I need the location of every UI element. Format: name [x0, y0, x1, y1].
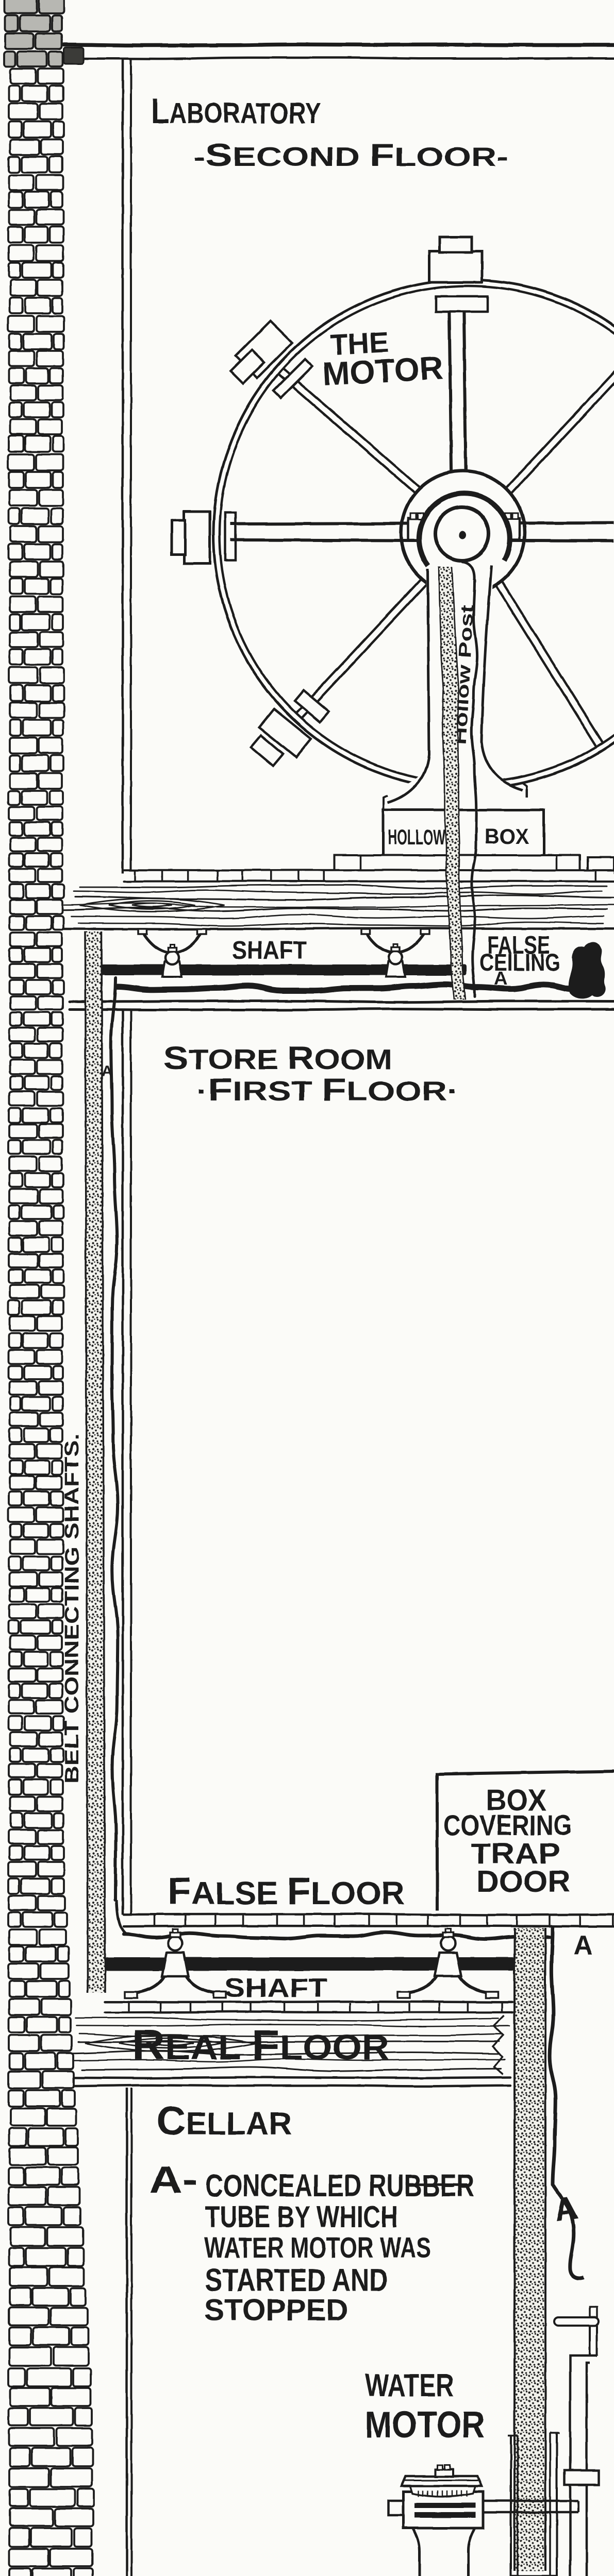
svg-text:A: A — [494, 968, 507, 989]
svg-text:LABORATORY: LABORATORY — [151, 91, 321, 131]
svg-text:FALSE FLOOR: FALSE FLOOR — [168, 1870, 405, 1912]
svg-text:TUBE BY WHICH: TUBE BY WHICH — [205, 2200, 398, 2234]
svg-text:A-: A- — [149, 2158, 197, 2201]
svg-text:A: A — [573, 1930, 593, 1960]
svg-text:COVERING: COVERING — [443, 1809, 572, 1841]
svg-text:MOTOR: MOTOR — [322, 349, 444, 393]
svg-text:-SECOND FLOOR-: -SECOND FLOOR- — [193, 138, 508, 173]
svg-text:DOOR: DOOR — [476, 1865, 570, 1899]
svg-text:CEILING: CEILING — [479, 948, 560, 976]
svg-text:SHAFT: SHAFT — [232, 937, 307, 964]
svg-text:REAL FLOOR: REAL FLOOR — [132, 2022, 389, 2069]
svg-text:BOX: BOX — [485, 824, 529, 849]
svg-text:MOTOR: MOTOR — [365, 2404, 485, 2446]
svg-text:·FIRST FLOOR·: ·FIRST FLOOR· — [196, 1072, 459, 1107]
svg-text:BELT CONNECTING SHAFTS.: BELT CONNECTING SHAFTS. — [61, 1433, 83, 1784]
svg-text:HOLLOW: HOLLOW — [388, 825, 445, 849]
svg-text:WATER MOTOR WAS: WATER MOTOR WAS — [204, 2231, 431, 2264]
svg-text:WATER: WATER — [365, 2368, 454, 2403]
svg-text:STOPPED: STOPPED — [204, 2293, 348, 2327]
svg-text:STORE ROOM: STORE ROOM — [163, 1040, 392, 1076]
svg-text:SHAFT: SHAFT — [224, 1973, 327, 2003]
